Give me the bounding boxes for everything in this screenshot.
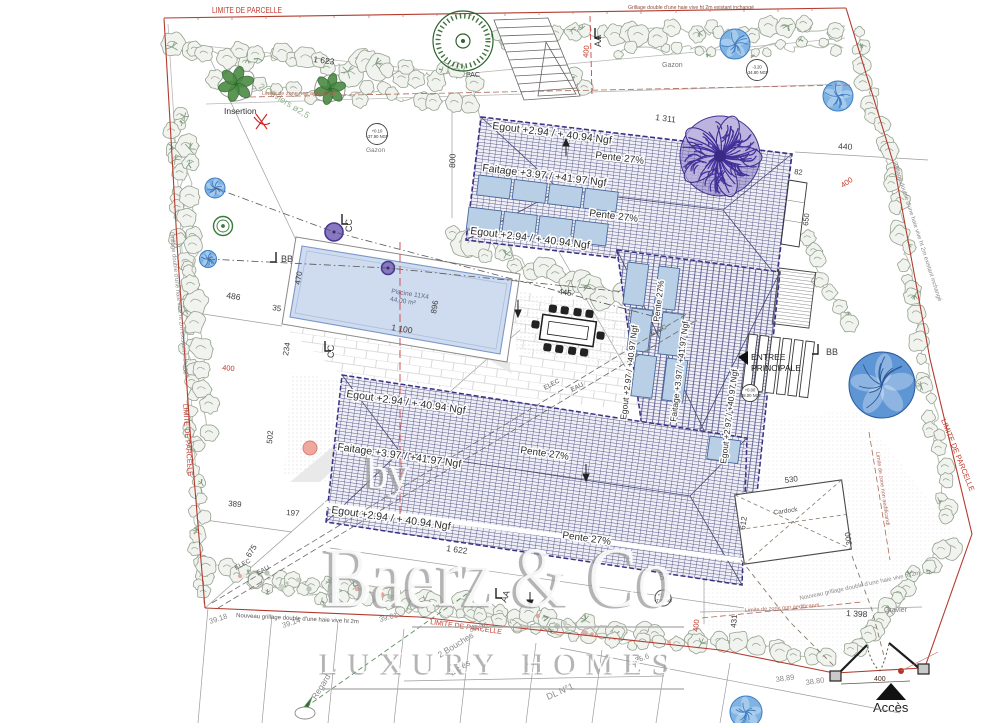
svg-text:BB: BB: [826, 347, 838, 357]
svg-text:197: 197: [286, 508, 301, 518]
svg-text:PAC: PAC: [466, 72, 480, 79]
svg-text:Gazon: Gazon: [662, 62, 683, 69]
svg-text:+34.80 NGF: +34.80 NGF: [746, 70, 769, 75]
svg-text:-3.20: -3.20: [752, 65, 762, 70]
svg-text:LUXURY HOMES: LUXURY HOMES: [322, 645, 682, 680]
svg-text:Accès: Accès: [873, 700, 909, 715]
svg-text:530: 530: [784, 474, 799, 485]
svg-text:+0.10: +0.10: [372, 129, 383, 134]
svg-text:LIMITE DE PARCELLE: LIMITE DE PARCELLE: [212, 5, 282, 15]
svg-text:300: 300: [843, 531, 854, 546]
svg-text:by: by: [367, 447, 410, 498]
svg-text:445: 445: [558, 287, 573, 298]
svg-text:Gravier: Gravier: [884, 607, 908, 614]
svg-text:+0.00: +0.00: [745, 388, 756, 393]
svg-text:Insertion: Insertion: [224, 106, 257, 116]
svg-text:BB: BB: [281, 254, 293, 264]
svg-text:+38.00 NGF: +38.00 NGF: [739, 393, 762, 398]
svg-text:+37.90 NGF: +37.90 NGF: [366, 134, 389, 139]
svg-text:CC: CC: [344, 219, 354, 232]
svg-text:Limite de zone non aedificandi: Limite de zone non aedificandi: [262, 91, 336, 97]
svg-text:650: 650: [801, 213, 811, 226]
svg-text:Baerz & Co: Baerz & Co: [324, 529, 674, 625]
svg-text:440: 440: [838, 141, 853, 152]
svg-text:400: 400: [691, 619, 701, 632]
svg-text:PRINCIPALE: PRINCIPALE: [751, 363, 801, 373]
svg-text:82: 82: [794, 167, 803, 177]
svg-text:1 398: 1 398: [846, 608, 868, 619]
svg-text:612: 612: [738, 515, 749, 530]
svg-text:389: 389: [228, 499, 243, 509]
svg-text:800: 800: [447, 153, 457, 168]
svg-text:Gazon: Gazon: [366, 147, 386, 154]
svg-text:400: 400: [874, 676, 886, 683]
svg-text:502: 502: [265, 430, 275, 445]
svg-text:ENTREE: ENTREE: [751, 352, 786, 362]
svg-text:431: 431: [729, 614, 739, 629]
svg-text:400: 400: [581, 45, 591, 58]
svg-text:400: 400: [222, 363, 235, 373]
svg-text:Grillage double d'une haie viv: Grillage double d'une haie vive ht 2m ex…: [628, 5, 754, 11]
